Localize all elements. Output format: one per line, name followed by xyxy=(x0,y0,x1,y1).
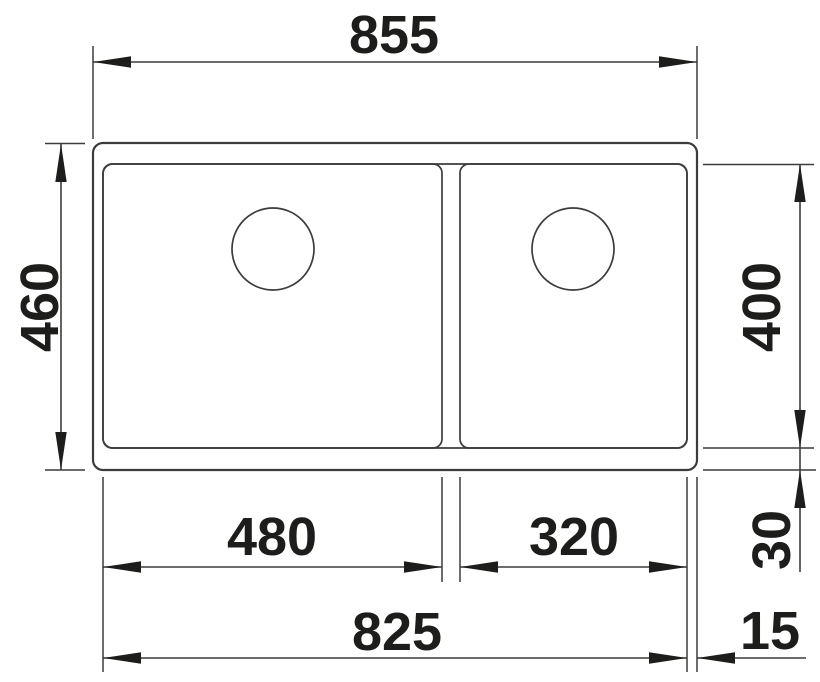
label-inner-total-width: 825 xyxy=(352,602,442,662)
label-left-bowl-width: 480 xyxy=(227,507,317,567)
arrow-15-left xyxy=(697,652,735,663)
label-rear-edge-offset: 30 xyxy=(742,510,802,570)
left-bowl-outline xyxy=(103,164,442,448)
sink-technical-drawing: 855 460 400 30 480 320 825 15 xyxy=(0,0,820,682)
arrow-460-down xyxy=(55,432,66,470)
left-bowl-drain-hole xyxy=(232,208,314,290)
arrow-480-left xyxy=(103,561,141,572)
arrow-400-up xyxy=(794,164,805,202)
label-overall-width: 855 xyxy=(349,5,439,65)
arrowheads-group xyxy=(55,56,805,663)
label-side-edge-offset: 15 xyxy=(740,601,800,661)
label-right-bowl-width: 320 xyxy=(529,507,619,567)
arrow-825-left xyxy=(103,652,141,663)
arrow-825-right xyxy=(649,652,687,663)
sink-outline-group xyxy=(93,143,697,470)
label-overall-depth: 460 xyxy=(10,262,70,352)
drawing-canvas: 855 460 400 30 480 320 825 15 xyxy=(0,0,820,682)
arrow-480-right xyxy=(404,561,442,572)
arrow-460-up xyxy=(55,144,66,182)
label-bowl-depth: 400 xyxy=(732,262,792,352)
arrow-400-down xyxy=(794,410,805,448)
sink-inner-rim-outline xyxy=(103,164,687,448)
arrow-320-right xyxy=(649,561,687,572)
dimension-lines-group xyxy=(45,46,816,672)
right-bowl-drain-hole xyxy=(532,208,614,290)
arrow-855-right xyxy=(659,56,697,67)
arrow-855-left xyxy=(93,56,131,67)
arrow-320-left xyxy=(460,561,498,572)
right-bowl-outline xyxy=(460,164,687,448)
sink-outer-outline xyxy=(93,143,697,470)
arrow-30-up xyxy=(794,470,805,508)
